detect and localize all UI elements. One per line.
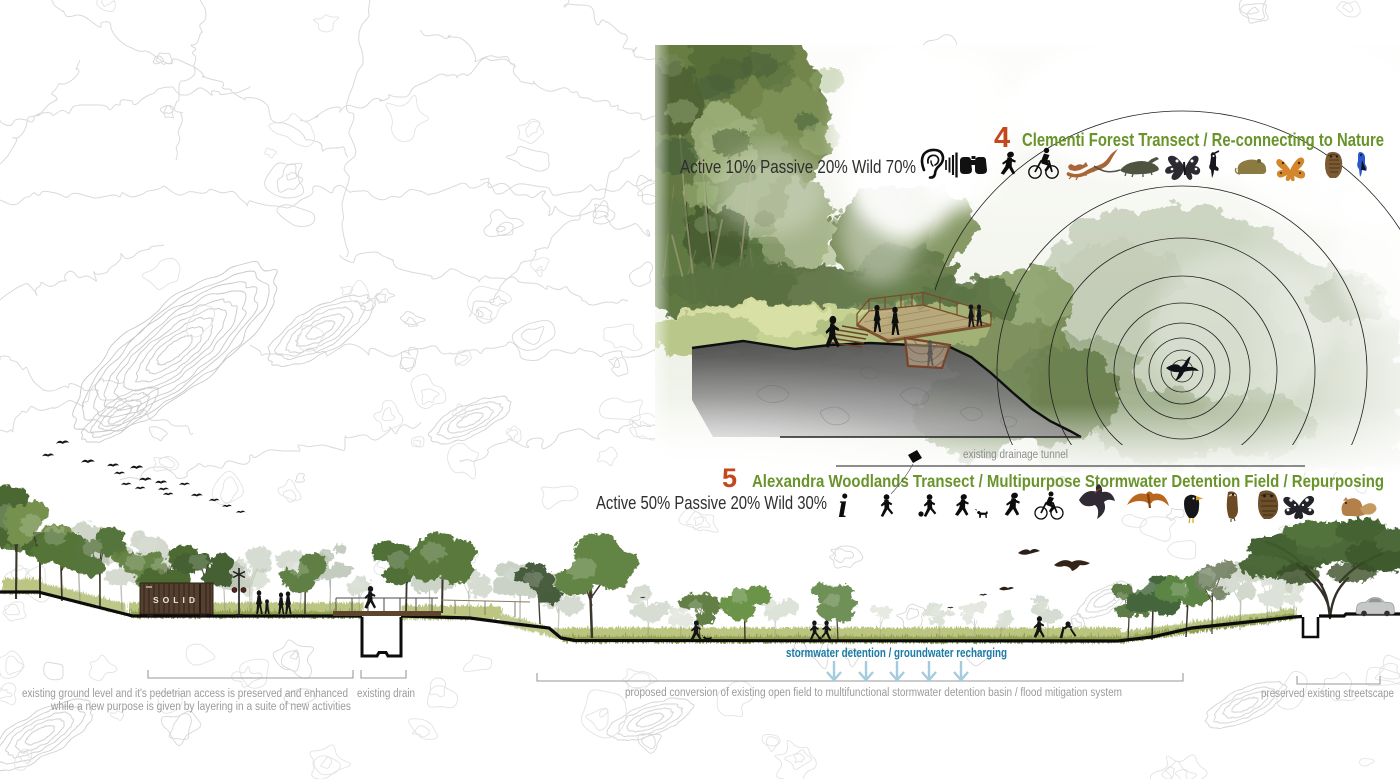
svg-text:existing drain: existing drain [357, 688, 415, 700]
svg-text:preserved existing streetscape: preserved existing streetscape [1261, 688, 1394, 700]
svg-text:Active 10% Passive 20% Wild 70: Active 10% Passive 20% Wild 70% [680, 156, 916, 177]
svg-text:Active 50% Passive 20% Wild 30: Active 50% Passive 20% Wild 30% [596, 493, 827, 513]
svg-text:i: i [838, 488, 848, 525]
svg-text:proposed conversion of existin: proposed conversion of existing open fie… [625, 687, 1122, 699]
svg-text:while a new purpose is given b: while a new purpose is given by layering… [50, 701, 351, 713]
svg-text:existing drainage tunnel: existing drainage tunnel [963, 449, 1068, 461]
svg-text:existing ground level and it's: existing ground level and it's pedetrian… [22, 688, 348, 700]
svg-text:stormwater detention / groundw: stormwater detention / groundwater recha… [786, 646, 1007, 660]
svg-text:SOLID: SOLID [153, 595, 199, 605]
svg-text:5: 5 [722, 463, 737, 493]
svg-text:Clementi Forest Transect / Re-: Clementi Forest Transect / Re-connecting… [1022, 129, 1384, 150]
svg-text:4: 4 [994, 122, 1010, 154]
